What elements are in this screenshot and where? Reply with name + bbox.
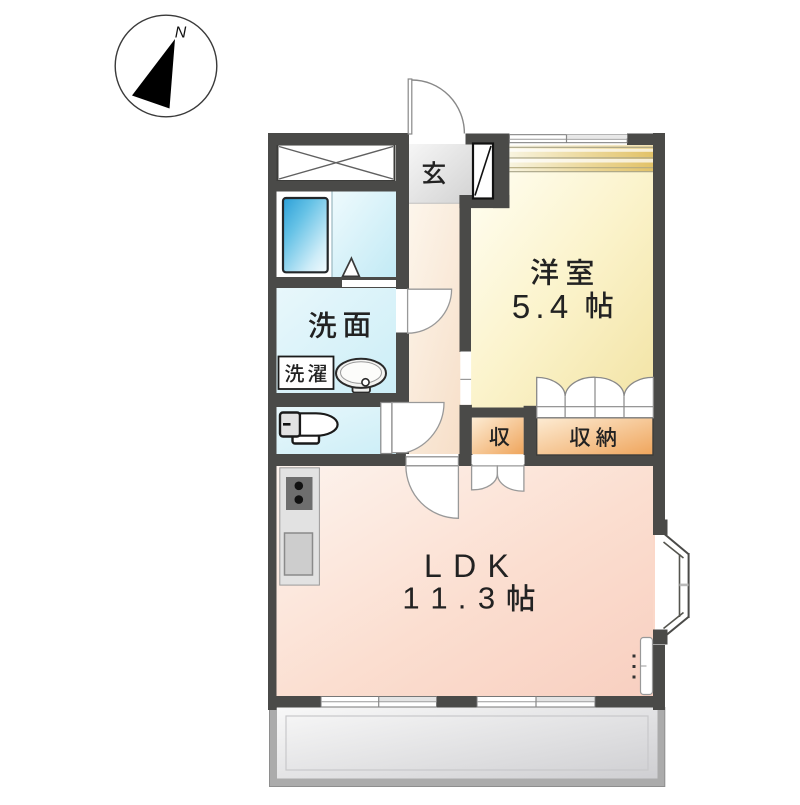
svg-text:1: 1 <box>430 581 447 616</box>
svg-text:3: 3 <box>478 581 495 616</box>
svg-text:LDK: LDK <box>424 548 520 584</box>
svg-text:N: N <box>175 25 187 42</box>
svg-text:4: 4 <box>550 288 568 325</box>
svg-text:.: . <box>458 581 467 616</box>
svg-text:1: 1 <box>402 581 419 616</box>
svg-text:5: 5 <box>512 288 530 325</box>
svg-text:.: . <box>535 288 544 325</box>
